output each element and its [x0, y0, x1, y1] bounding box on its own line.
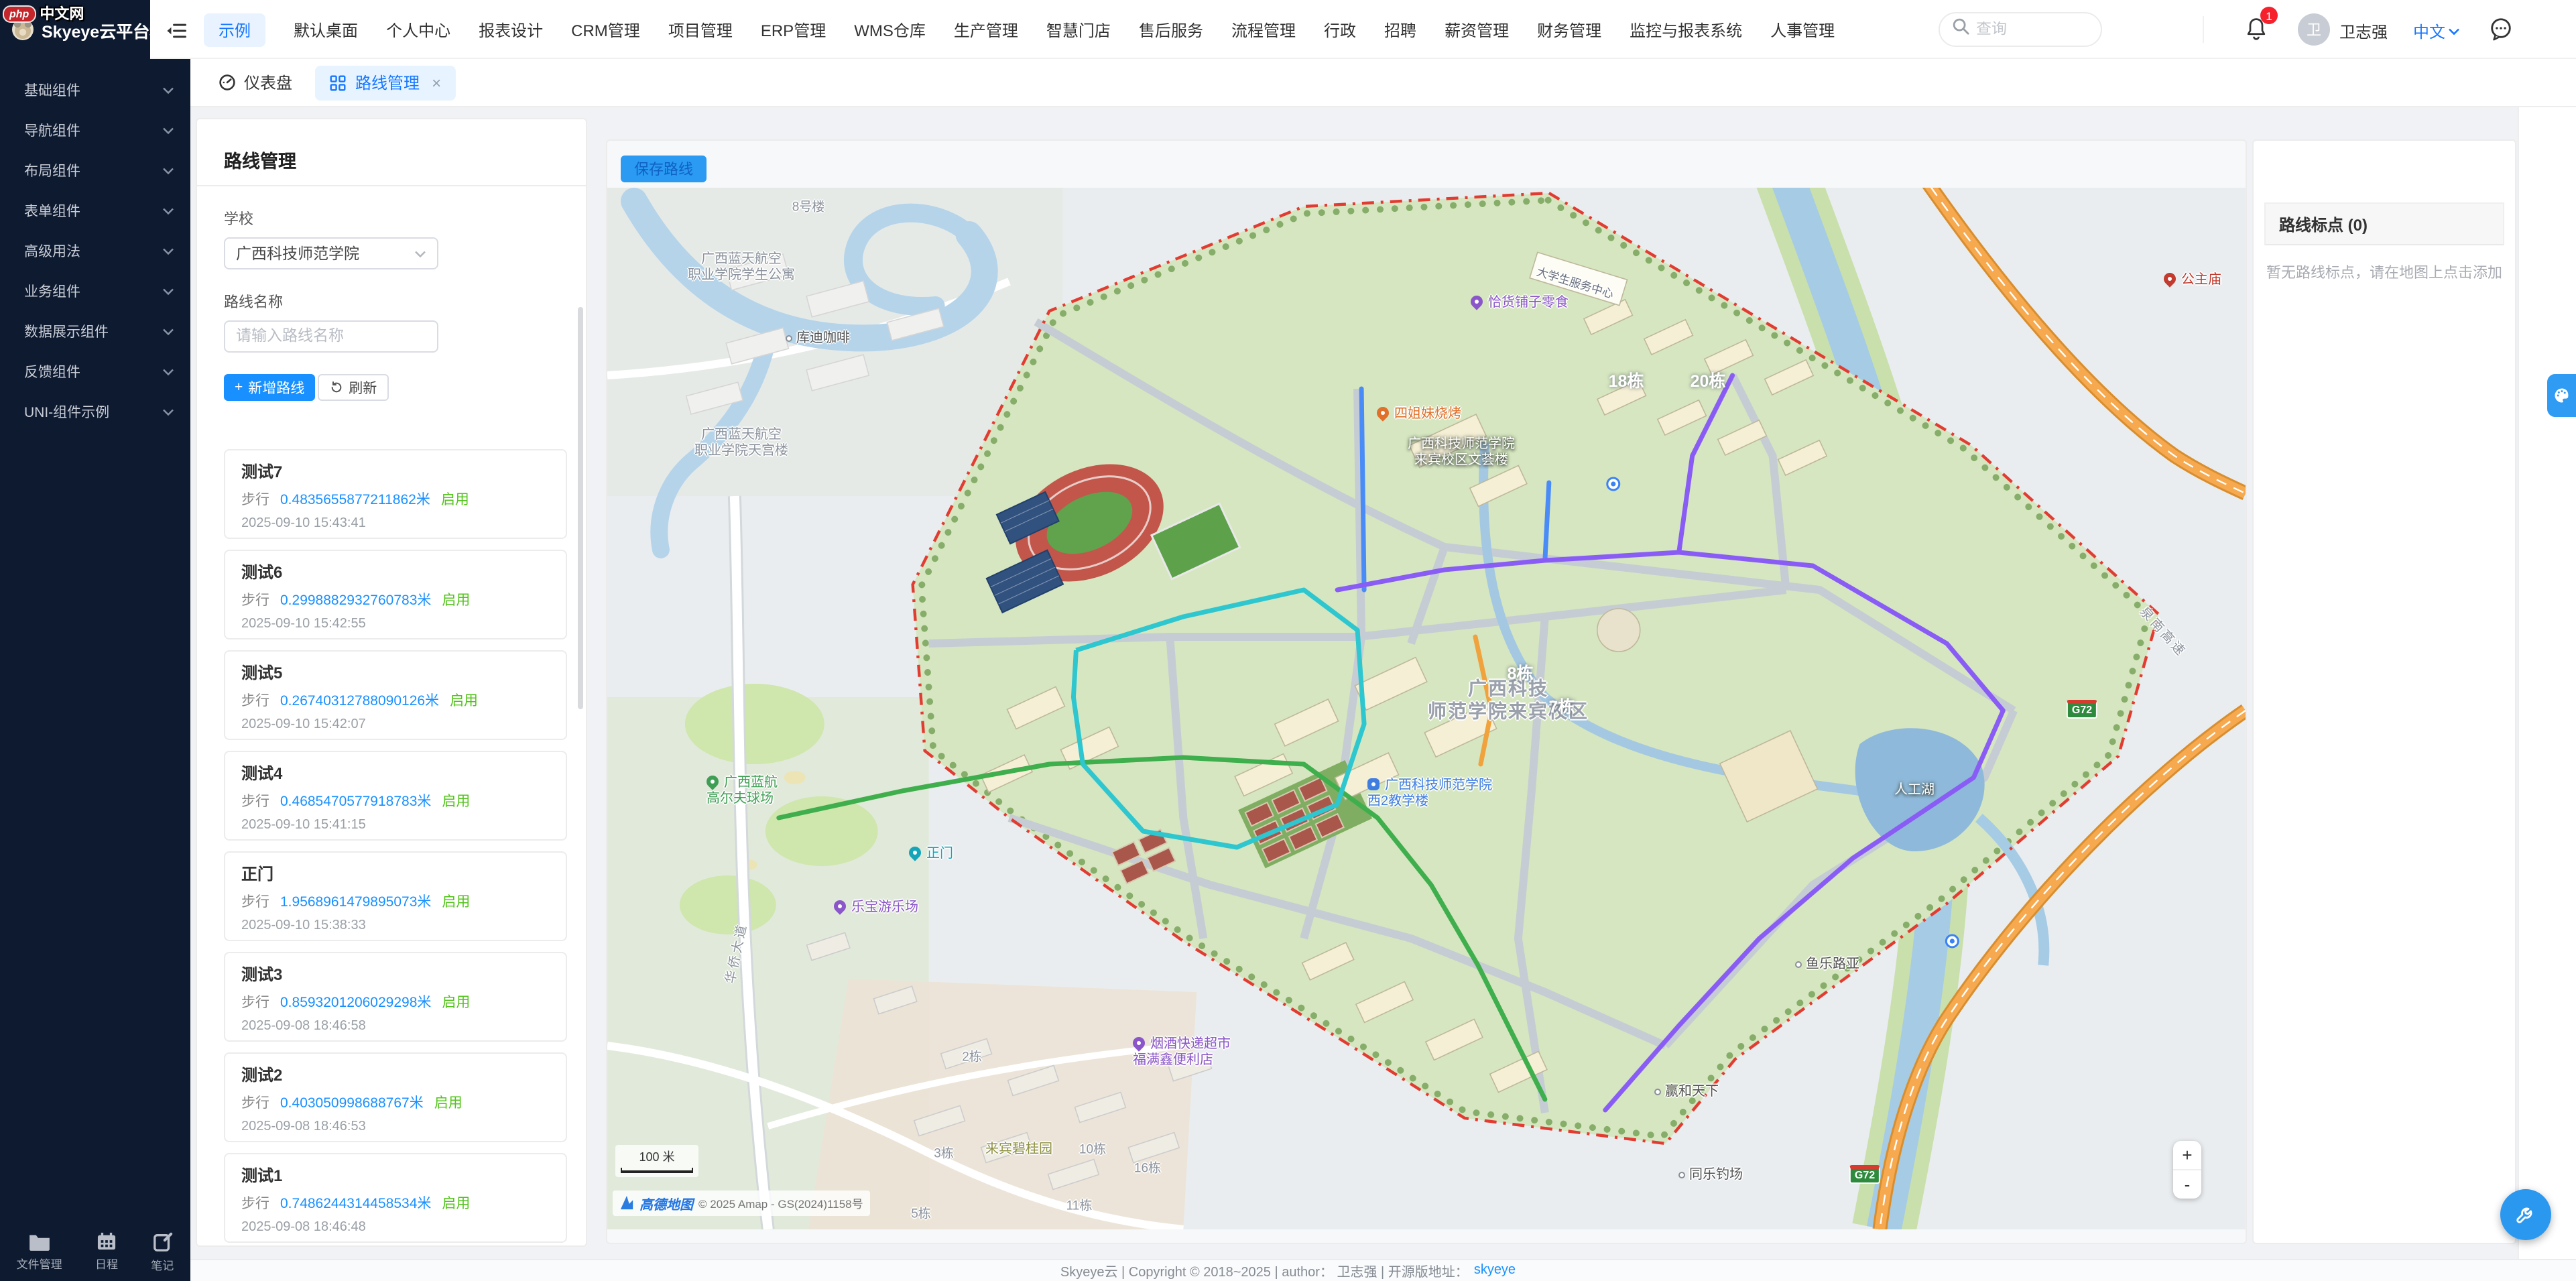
- map-label: G72: [2067, 700, 2097, 719]
- chevron-down-icon: [162, 85, 174, 95]
- school-select[interactable]: 广西科技师范学院: [224, 237, 438, 269]
- map-label: 广西蓝天航空 职业学院学生公寓: [688, 252, 795, 284]
- route-mode: 步行: [241, 489, 269, 509]
- sidebar-item[interactable]: 反馈组件: [0, 351, 190, 391]
- service-wrench-button[interactable]: [2500, 1189, 2551, 1240]
- chevron-down-icon: [414, 249, 426, 258]
- chat-icon[interactable]: [2488, 16, 2515, 43]
- map-pin-icon: [1130, 1034, 1147, 1051]
- page-title: 路线管理: [197, 119, 586, 186]
- route-name-input[interactable]: [224, 320, 438, 353]
- route-status-badge: 启用: [434, 1093, 463, 1113]
- route-distance: 0.4685470577918783米: [280, 791, 431, 811]
- divider: [2203, 16, 2204, 43]
- route-name: 测试3: [241, 963, 550, 985]
- nav-item[interactable]: 报表设计: [479, 18, 543, 41]
- route-distance: 0.7486244314458534米: [280, 1193, 431, 1213]
- nav-item[interactable]: 智慧门店: [1046, 18, 1111, 41]
- route-status-badge: 启用: [441, 489, 469, 509]
- route-mode: 步行: [241, 791, 269, 811]
- sidebar-item[interactable]: 基础组件: [0, 70, 190, 110]
- footer: Skyeye云 | Copyright © 2018~2025 | author…: [0, 1259, 2576, 1281]
- sidebar-item[interactable]: 布局组件: [0, 150, 190, 190]
- nav-item[interactable]: 行政: [1324, 18, 1356, 41]
- sidebar: 基础组件导航组件布局组件表单组件高级用法业务组件数据展示组件反馈组件UNI-组件…: [0, 59, 190, 1281]
- map-label: 鱼乐路亚: [1795, 957, 1859, 973]
- route-card[interactable]: 测试7步行0.4835655877211862米启用2025-09-10 15:…: [224, 449, 567, 539]
- map-pin-icon: [906, 844, 923, 861]
- chevron-down-icon: [162, 246, 174, 255]
- nav-item[interactable]: 监控与报表系统: [1630, 18, 1742, 41]
- user-name[interactable]: 卫志强: [2339, 20, 2388, 43]
- route-status-badge: 启用: [442, 590, 470, 610]
- route-card[interactable]: 测试2步行0.403050998688767米启用2025-09-08 18:4…: [224, 1052, 567, 1142]
- footer-link[interactable]: skyeye: [1474, 1264, 1516, 1278]
- map-label: 3栋: [934, 1147, 954, 1162]
- refresh-icon: [330, 381, 343, 394]
- nav-item[interactable]: 个人中心: [386, 18, 450, 41]
- nav-item[interactable]: 默认桌面: [294, 18, 358, 41]
- map-label: 20栋: [1691, 372, 1726, 392]
- map-label: 广西科技师范学院 来宾校区文荟楼: [1408, 437, 1515, 469]
- nav-item[interactable]: 示例: [204, 13, 265, 46]
- route-name: 测试1: [241, 1164, 550, 1186]
- route-time: 2025-09-08 18:46:58: [241, 1019, 550, 1034]
- route-time: 2025-09-10 15:42:07: [241, 717, 550, 732]
- dashboard-icon: [219, 74, 236, 91]
- route-status-badge: 启用: [442, 992, 470, 1012]
- sidebar-menu: 基础组件导航组件布局组件表单组件高级用法业务组件数据展示组件反馈组件UNI-组件…: [0, 59, 190, 432]
- route-mode: 步行: [241, 690, 269, 711]
- tab-route-management[interactable]: 路线管理 ×: [315, 65, 456, 100]
- sidebar-item[interactable]: UNI-组件示例: [0, 391, 190, 432]
- chevron-down-icon: [162, 326, 174, 336]
- chevron-down-icon: [162, 206, 174, 215]
- route-name: 测试4: [241, 761, 550, 784]
- route-distance: 0.2998882932760783米: [280, 590, 431, 610]
- route-card[interactable]: 测试1步行0.7486244314458534米启用2025-09-08 18:…: [224, 1153, 567, 1243]
- map-label: 公主庙: [2164, 271, 2221, 289]
- top-navbar: Skyeye云平台租户 示例默认桌面个人中心报表设计CRM管理项目管理ERP管理…: [0, 0, 2576, 59]
- map-label: 广西蓝航 高尔夫球场: [707, 774, 778, 808]
- sidebar-shortcut-日程[interactable]: 日程: [95, 1231, 118, 1273]
- map-pin-icon: [2161, 270, 2178, 287]
- chevron-down-icon: [162, 166, 174, 175]
- route-status-badge: 启用: [450, 690, 478, 711]
- map-label: 10栋: [1079, 1143, 1106, 1158]
- map-label: 18栋: [1609, 372, 1644, 392]
- tab-bar: 仪表盘 路线管理 ×: [190, 59, 2576, 107]
- chevron-down-icon: [162, 407, 174, 416]
- route-panel: 路线管理 学校 广西科技师范学院 路线名称 + 新增路线 刷新 测试7步行0.4…: [196, 118, 587, 1247]
- notification-bell[interactable]: 1: [2244, 16, 2271, 43]
- zoom-in-button[interactable]: +: [2173, 1141, 2201, 1170]
- map-dot-icon: [1795, 961, 1802, 968]
- map-label: 5栋: [911, 1207, 931, 1223]
- waypoints-empty-text: 暂无路线标点，请在地图上点击添加: [2254, 261, 2515, 283]
- nav-item[interactable]: 售后服务: [1139, 18, 1203, 41]
- route-card[interactable]: 测试4步行0.4685470577918783米启用2025-09-10 15:…: [224, 751, 567, 841]
- route-mode: 步行: [241, 992, 269, 1012]
- map-label: 广西蓝天航空 职业学院天宫楼: [694, 428, 788, 460]
- map-label: 华侨大道: [723, 922, 751, 985]
- route-list: 测试7步行0.4835655877211862米启用2025-09-10 15:…: [224, 449, 567, 1245]
- calendar-icon: [97, 1231, 117, 1253]
- map-dot-icon: [1654, 1089, 1661, 1095]
- nav-item[interactable]: 薪资管理: [1445, 18, 1509, 41]
- nav-item[interactable]: 项目管理: [668, 18, 733, 41]
- tab-dashboard-label: 仪表盘: [244, 71, 292, 94]
- route-mode: 步行: [241, 1093, 269, 1113]
- notification-badge: 1: [2260, 7, 2278, 24]
- sidebar-item[interactable]: 高级用法: [0, 231, 190, 271]
- nav-item[interactable]: 招聘: [1384, 18, 1416, 41]
- school-label: 学校: [224, 208, 559, 229]
- refresh-button[interactable]: 刷新: [318, 374, 389, 401]
- map-attribution: 高德地图 © 2025 Amap - GS(2024)1158号: [613, 1191, 870, 1216]
- map-pin-icon: [1374, 404, 1391, 421]
- route-distance: 0.403050998688767米: [280, 1093, 424, 1113]
- folder-icon: [28, 1231, 51, 1253]
- map-zoom-control: + -: [2173, 1141, 2201, 1199]
- waypoints-panel: 路线标点 (0) 暂无路线标点，请在地图上点击添加: [2252, 139, 2516, 1244]
- route-distance: 1.9568961479895073米: [280, 892, 431, 912]
- amap-brand: 高德地图: [639, 1193, 693, 1213]
- map-label: 16栋: [1134, 1162, 1161, 1177]
- route-time: 2025-09-10 15:43:41: [241, 516, 550, 531]
- route-mode: 步行: [241, 590, 269, 610]
- nav-item[interactable]: WMS仓库: [854, 18, 926, 41]
- map-pin-icon: [1468, 293, 1485, 310]
- nav-item[interactable]: 财务管理: [1537, 18, 1601, 41]
- map-pin-icon: [831, 898, 848, 914]
- php-badge: php: [3, 5, 36, 22]
- route-status-badge: 启用: [442, 892, 470, 912]
- route-card[interactable]: 正门步行1.9568961479895073米启用2025-09-10 15:3…: [224, 851, 567, 941]
- user-avatar[interactable]: 卫: [2298, 13, 2330, 46]
- language-switch[interactable]: 中文: [2413, 20, 2460, 43]
- route-time: 2025-09-10 15:41:15: [241, 818, 550, 833]
- map-label: 赢和天下: [1654, 1085, 1719, 1101]
- waypoints-header: 路线标点 (0): [2264, 202, 2504, 245]
- sidebar-item[interactable]: 表单组件: [0, 190, 190, 231]
- chevron-down-icon: [162, 367, 174, 376]
- map-label: 来宾碧桂园: [985, 1142, 1052, 1158]
- search-input[interactable]: [1976, 21, 2083, 38]
- scrollbar[interactable]: [578, 307, 583, 709]
- sidebar-shortcut-文件管理[interactable]: 文件管理: [17, 1231, 62, 1273]
- map-label: 7栋: [1549, 698, 1575, 718]
- route-mode: 步行: [241, 892, 269, 912]
- chevron-down-icon: [162, 125, 174, 135]
- map-label: G72: [1849, 1165, 1880, 1184]
- right-gutter: [2518, 107, 2576, 1259]
- map-card: 保存路线: [606, 139, 2247, 1244]
- zoom-out-button[interactable]: -: [2173, 1170, 2201, 1199]
- grid-icon: [330, 74, 346, 90]
- plus-icon: +: [235, 379, 243, 395]
- map-label: 人工湖: [1894, 783, 1935, 799]
- map-label: 同乐钓场: [1678, 1168, 1743, 1184]
- wrench-icon: [2514, 1203, 2538, 1227]
- route-time: 2025-09-10 15:42:55: [241, 617, 550, 631]
- tab-active-label: 路线管理: [355, 71, 420, 94]
- route-time: 2025-09-10 15:38:33: [241, 918, 550, 933]
- route-card[interactable]: 测试6步行0.2998882932760783米启用2025-09-10 15:…: [224, 550, 567, 639]
- map-label: 库迪咖啡: [786, 331, 850, 347]
- route-name: 测试6: [241, 560, 550, 583]
- nav-item[interactable]: CRM管理: [571, 18, 640, 41]
- route-distance: 0.26740312788090126米: [280, 690, 439, 711]
- add-route-button[interactable]: + 新增路线: [224, 374, 315, 401]
- save-route-button[interactable]: 保存路线: [621, 156, 707, 182]
- route-status-badge: 启用: [442, 791, 470, 811]
- map-label: 乐宝游乐场: [834, 899, 918, 916]
- route-distance: 0.4835655877211862米: [280, 489, 430, 509]
- map-label: 广西科技师范学院 西2教学楼: [1367, 777, 1492, 810]
- route-status-badge: 启用: [442, 1193, 470, 1213]
- main-nav: 示例默认桌面个人中心报表设计CRM管理项目管理ERP管理WMS仓库生产管理智慧门…: [204, 0, 1925, 59]
- search-box[interactable]: [1939, 12, 2102, 47]
- theme-palette-button[interactable]: [2547, 374, 2576, 417]
- sidebar-item[interactable]: 数据展示组件: [0, 311, 190, 351]
- route-name: 测试2: [241, 1063, 550, 1086]
- search-icon: [1952, 17, 1969, 42]
- nav-item[interactable]: ERP管理: [761, 18, 826, 41]
- nav-item[interactable]: 人事管理: [1770, 18, 1835, 41]
- map-pin-icon: [704, 773, 721, 790]
- chevron-down-icon: [162, 286, 174, 296]
- map-label: 8栋: [1508, 664, 1534, 684]
- map-label: 四姐妹烧烤: [1377, 406, 1461, 423]
- map-label: 正门: [909, 845, 953, 863]
- map-labels: 公主庙四姐妹烧烤恰货铺子零食库迪咖啡广西蓝天航空 职业学院学生公寓广西蓝天航空 …: [607, 188, 2246, 1229]
- map-label: 烟酒快递超市 福满鑫便利店: [1133, 1036, 1231, 1069]
- site-watermark: php 中文网: [3, 3, 84, 24]
- sidebar-shortcuts: 文件管理日程笔记: [0, 1231, 190, 1273]
- route-name: 测试7: [241, 460, 550, 483]
- route-mode: 步行: [241, 1193, 269, 1213]
- sidebar-item[interactable]: 导航组件: [0, 110, 190, 150]
- route-card[interactable]: 测试3步行0.8593201206029298米启用2025-09-08 18:…: [224, 952, 567, 1042]
- map-dot-icon: [1678, 1172, 1685, 1178]
- close-icon[interactable]: ×: [432, 73, 441, 92]
- route-time: 2025-09-08 18:46:48: [241, 1220, 550, 1235]
- map-label: 泉南高速: [2136, 605, 2189, 661]
- route-card[interactable]: 测试5步行0.26740312788090126米启用2025-09-10 15…: [224, 650, 567, 740]
- route-name: 正门: [241, 862, 550, 885]
- map-label: 恰货铺子零食: [1471, 294, 1569, 312]
- nav-item[interactable]: 生产管理: [954, 18, 1018, 41]
- map-scale: 100 米: [615, 1145, 698, 1177]
- map-dot-icon: [786, 335, 792, 342]
- map-label: 2栋: [962, 1050, 982, 1066]
- route-distance: 0.8593201206029298米: [280, 992, 431, 1012]
- sidebar-item[interactable]: 业务组件: [0, 271, 190, 311]
- note-icon: [152, 1231, 172, 1254]
- menu-fold-icon[interactable]: [166, 20, 188, 42]
- palette-icon: [2552, 386, 2571, 405]
- amap-logo-icon: [619, 1196, 634, 1211]
- chevron-down-icon: [2448, 27, 2460, 36]
- map-label: 8号楼: [792, 200, 825, 216]
- route-time: 2025-09-08 18:46:53: [241, 1119, 550, 1134]
- map-canvas[interactable]: 公主庙四姐妹烧烤恰货铺子零食库迪咖啡广西蓝天航空 职业学院学生公寓广西蓝天航空 …: [607, 188, 2246, 1229]
- tab-dashboard[interactable]: 仪表盘: [219, 71, 292, 94]
- nav-item[interactable]: 流程管理: [1231, 18, 1296, 41]
- map-label: 11栋: [1066, 1199, 1093, 1215]
- route-name-label: 路线名称: [224, 291, 559, 312]
- sidebar-shortcut-笔记[interactable]: 笔记: [151, 1231, 174, 1273]
- route-name: 测试5: [241, 661, 550, 684]
- map-pin-icon: [1367, 778, 1379, 790]
